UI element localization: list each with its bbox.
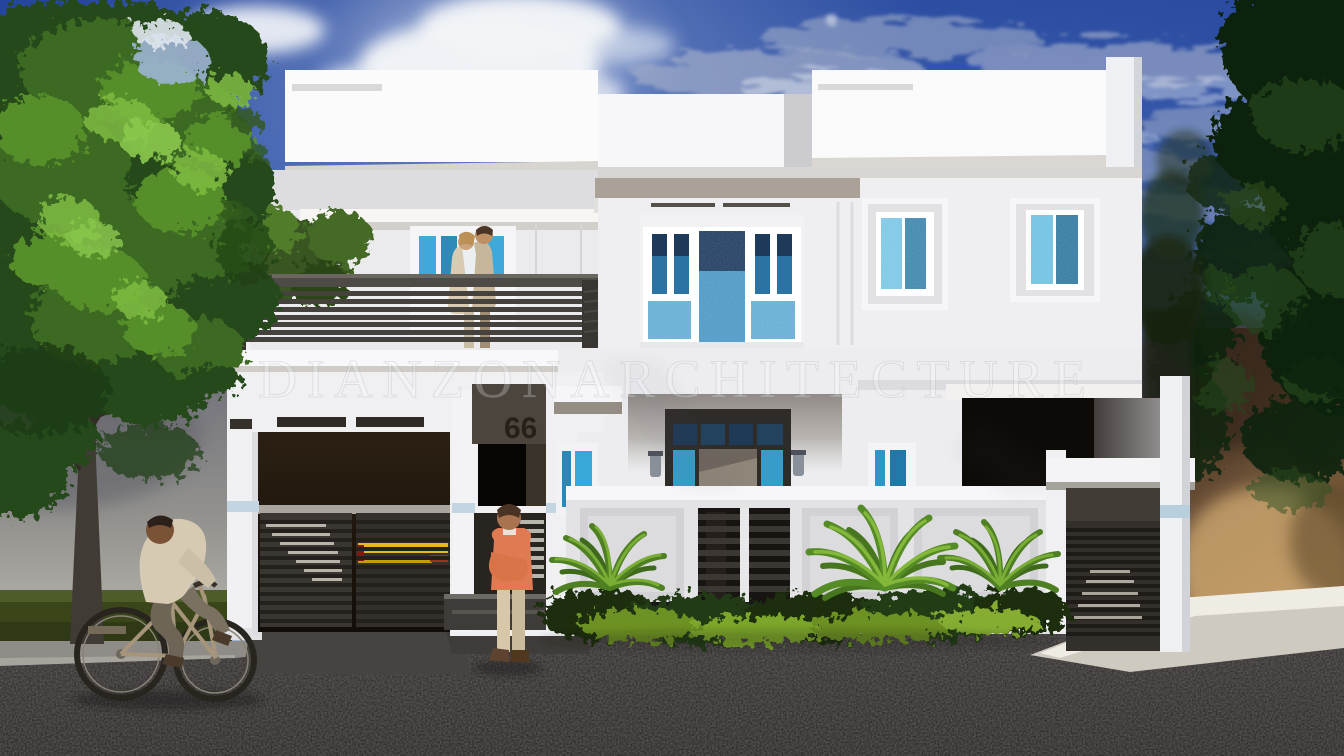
svg-text:66: 66 [504, 412, 537, 445]
svg-text:DIANZONARCHITECTURE: DIANZONARCHITECTURE [258, 349, 1095, 409]
